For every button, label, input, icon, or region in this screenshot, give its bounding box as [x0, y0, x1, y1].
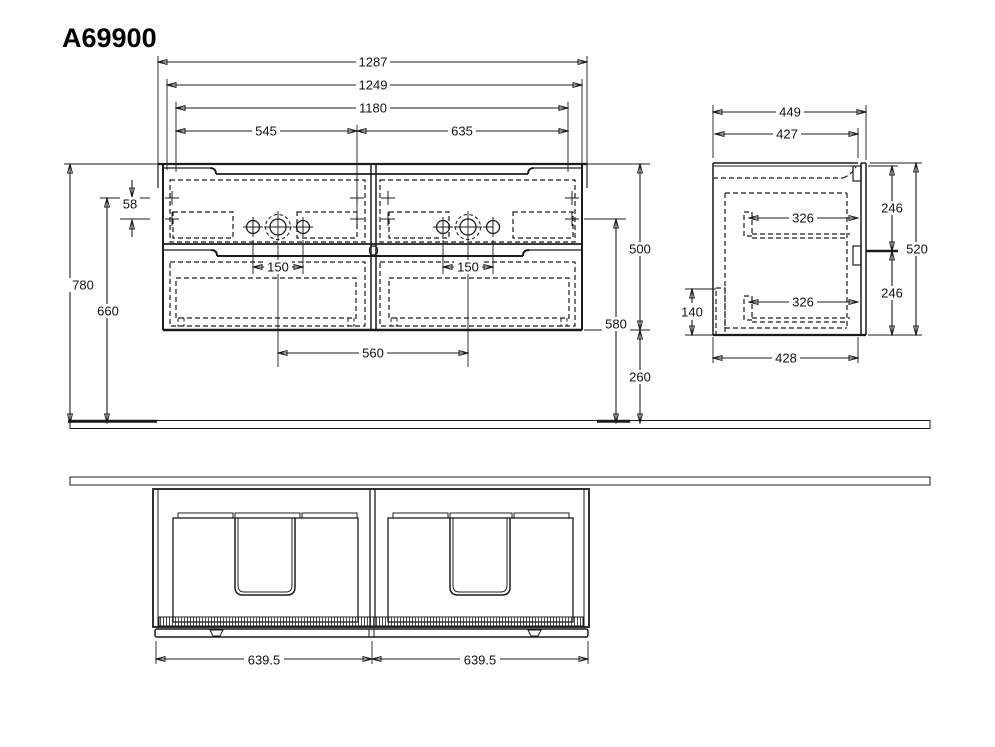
- wall-line: [70, 477, 930, 485]
- dim-height-lower-fix: 580: [605, 317, 627, 332]
- dimension-labels: 1287 1249 1180 545 635 150 150 560 780 6…: [69, 55, 931, 668]
- siphon-cutout-left: [235, 518, 295, 595]
- handle-profile-middle: [853, 246, 861, 265]
- dim-tap-holes-right: 150: [457, 260, 479, 275]
- technical-drawing: A69900: [0, 0, 995, 747]
- bracket-right: [528, 630, 541, 636]
- siphon-cutout-right: [450, 518, 510, 595]
- dim-cabinet-width: 1249: [359, 78, 388, 93]
- dim-depth-total: 449: [779, 105, 801, 120]
- bottom-view: [153, 489, 589, 637]
- dim-front-lower: 246: [881, 286, 903, 301]
- front-view: [158, 164, 587, 367]
- dim-fix-offset: 58: [123, 197, 137, 212]
- dim-basin-center-distance: 560: [362, 346, 384, 361]
- wall-rail: [716, 288, 725, 335]
- handle-profile-top: [853, 166, 861, 181]
- dim-half-left: 639.5: [248, 653, 281, 668]
- dim-basin-width: 1287: [359, 55, 388, 70]
- drawing-page: A69900: [0, 0, 995, 747]
- dim-floor-clearance: 260: [629, 370, 651, 385]
- product-code-title: A69900: [62, 23, 157, 53]
- mounting-hole-crosses: [165, 191, 579, 226]
- dim-drawer-inner-top: 326: [792, 211, 814, 226]
- tap-holes-right: [433, 215, 500, 240]
- dim-depth-body: 427: [776, 127, 798, 142]
- dim-depth-bottom: 428: [775, 351, 797, 366]
- dim-span-left: 545: [255, 124, 277, 139]
- dim-carcass-width: 1180: [359, 101, 387, 116]
- dim-drawer-inner-bottom: 326: [792, 295, 814, 310]
- dim-rail-height: 140: [681, 305, 703, 320]
- dim-tap-holes-left: 150: [267, 260, 289, 275]
- dim-span-right: 635: [451, 124, 473, 139]
- dim-front-upper: 246: [881, 201, 903, 216]
- bracket-left: [210, 630, 223, 636]
- dim-cabinet-height: 500: [629, 242, 651, 257]
- dim-half-right: 639.5: [464, 653, 497, 668]
- dim-height-upper-fix: 660: [97, 304, 119, 319]
- floor-line: [68, 421, 930, 429]
- dim-height-top: 780: [72, 278, 94, 293]
- dim-body-height: 520: [906, 242, 928, 257]
